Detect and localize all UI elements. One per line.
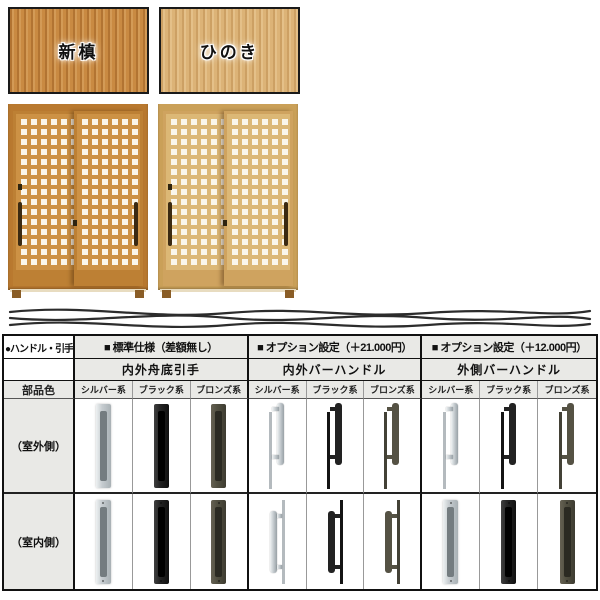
- door-lock-icon: [168, 184, 172, 190]
- door-image-hinoki: [158, 104, 298, 298]
- door-foot: [285, 290, 294, 298]
- handle-cell-indoor-pull-black: [480, 494, 538, 589]
- door-lock-icon: [73, 220, 77, 226]
- handle-cell-outdoor-pull-bronze: [191, 399, 249, 494]
- handle-cell-indoor-pull-bronze: [538, 494, 596, 589]
- group-spec-standard: ■ 標準仕様（差額無し）: [75, 336, 249, 359]
- bar-handle-icon: [264, 403, 290, 489]
- handle-cell-indoor-pull-silver: [422, 494, 480, 589]
- door-handle-icon: [134, 202, 138, 246]
- handle-cell-outdoor-bar-bronze: [538, 399, 596, 494]
- handle-cell-outdoor-bar-silver: [249, 399, 307, 494]
- group-spec-option-21000: ■ オプション設定（＋21.000円）: [249, 336, 423, 359]
- color-header-black: ブラック系: [480, 381, 538, 399]
- recessed-pull-icon: [501, 500, 516, 584]
- group-spec-option-12000: ■ オプション設定（＋12.000円）: [422, 336, 596, 359]
- door-panel-right: [224, 111, 293, 286]
- color-header-silver: シルバー系: [422, 381, 480, 399]
- recessed-pull-icon: [211, 500, 226, 584]
- color-header-black: ブラック系: [307, 381, 365, 399]
- recessed-pull-icon: [443, 500, 458, 584]
- recessed-pull-icon: [154, 404, 169, 488]
- wood-sample-shinmaki: 新槙: [8, 7, 149, 94]
- handle-cell-outdoor-pull-black: [133, 399, 191, 494]
- handle-cell-indoor-pull-black: [133, 494, 191, 589]
- color-header-silver: シルバー系: [249, 381, 307, 399]
- wood-sample-label: 新槙: [59, 38, 99, 63]
- recessed-pull-icon: [211, 404, 226, 488]
- catalog-sheet: 新槙 ひのき: [0, 0, 600, 600]
- handle-cell-outdoor-bar-black: [307, 399, 365, 494]
- wood-sample-hinoki: ひのき: [159, 7, 300, 94]
- door-handle-icon: [18, 202, 22, 246]
- lattice-grille: [17, 115, 78, 269]
- recessed-pull-icon: [560, 500, 575, 584]
- handle-cell-indoor-bar-black: [307, 494, 365, 589]
- part-color-header: 部品色: [4, 381, 75, 399]
- door-panel-left: [13, 111, 82, 286]
- handle-cell-outdoor-bar-bronze: [364, 399, 422, 494]
- door-handle-icon: [168, 202, 172, 246]
- handle-cell-outdoor-pull-silver: [75, 399, 133, 494]
- bar-handle-icon: [554, 403, 580, 489]
- handle-cell-outdoor-bar-silver: [422, 399, 480, 494]
- door-image-shinmaki: [8, 104, 148, 298]
- color-header-bronze: ブロンズ系: [538, 381, 596, 399]
- color-header-black: ブラック系: [133, 381, 191, 399]
- door-panel-right: [74, 111, 143, 286]
- handle-cell-indoor-bar-silver: [249, 494, 307, 589]
- bar-handle-icon: [379, 403, 405, 489]
- lattice-grille: [167, 115, 228, 269]
- color-header-bronze: ブロンズ系: [364, 381, 422, 399]
- door-sill: [160, 289, 296, 292]
- row-label-outdoor: （室外側）: [4, 399, 75, 494]
- bar-handle-icon: [438, 403, 464, 489]
- door-handle-icon: [284, 202, 288, 246]
- door-panel-left: [163, 111, 232, 286]
- group-name-inout-bar-handle: 内外バーハンドル: [249, 359, 423, 381]
- door-sill: [10, 289, 146, 292]
- handle-spec-table: ●ハンドル・引手 ■ 標準仕様（差額無し） ■ オプション設定（＋21.000円…: [2, 334, 598, 591]
- break-lines-icon: [8, 303, 592, 333]
- row-label-indoor: （室内側）: [4, 494, 75, 589]
- bar-handle-icon: [496, 403, 522, 489]
- wood-sample-label: ひのき: [200, 38, 260, 63]
- table-corner-empty: [4, 359, 75, 381]
- bar-handle-icon: [322, 499, 348, 585]
- recessed-pull-icon: [96, 404, 111, 488]
- bar-handle-icon: [379, 499, 405, 585]
- door-panels: [13, 111, 143, 286]
- lattice-grille: [228, 115, 289, 269]
- door-foot: [135, 290, 144, 298]
- bar-handle-icon: [264, 499, 290, 585]
- door-panels: [163, 111, 293, 286]
- door-foot: [162, 290, 171, 298]
- table-corner-title: ●ハンドル・引手: [4, 336, 75, 359]
- lattice-grille: [78, 115, 139, 269]
- color-header-silver: シルバー系: [75, 381, 133, 399]
- door-lock-icon: [18, 184, 22, 190]
- handle-cell-indoor-pull-bronze: [191, 494, 249, 589]
- handle-cell-outdoor-bar-black: [480, 399, 538, 494]
- group-name-outside-bar-handle: 外側バーハンドル: [422, 359, 596, 381]
- door-lock-icon: [223, 220, 227, 226]
- color-header-bronze: ブロンズ系: [191, 381, 249, 399]
- group-name-funazoko-pull: 内外舟底引手: [75, 359, 249, 381]
- door-foot: [12, 290, 21, 298]
- handle-cell-indoor-bar-bronze: [364, 494, 422, 589]
- bar-handle-icon: [322, 403, 348, 489]
- recessed-pull-icon: [96, 500, 111, 584]
- handle-cell-indoor-pull-silver: [75, 494, 133, 589]
- recessed-pull-icon: [154, 500, 169, 584]
